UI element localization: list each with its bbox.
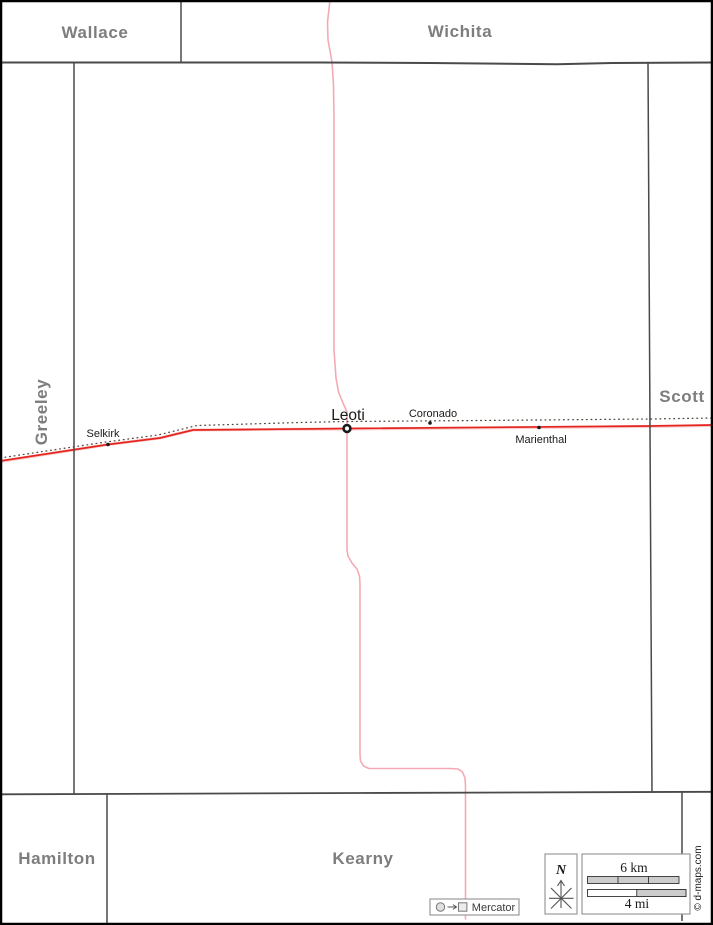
leoti-town-label: Leoti — [331, 407, 365, 424]
copyright-label: © d-maps.com — [693, 845, 704, 910]
marienthal-town-dot — [537, 426, 541, 430]
scale-widget: 6 km 4 mi — [582, 854, 690, 914]
county-label-scott: Scott — [659, 387, 705, 406]
county-label-greeley: Greeley — [32, 379, 51, 446]
projection-widget: Mercator — [430, 899, 519, 915]
flat-map-square-icon — [459, 903, 467, 911]
scale-km-label: 6 km — [620, 860, 648, 875]
county-label-hamilton: Hamilton — [18, 849, 96, 868]
scale-bar-km — [588, 877, 680, 884]
projection-label: Mercator — [472, 902, 516, 914]
coronado-town-dot — [428, 421, 432, 425]
map-background — [0, 0, 713, 925]
county-label-kearny: Kearny — [332, 849, 393, 868]
county-label-wichita: Wichita — [428, 22, 493, 41]
north-label: N — [555, 863, 567, 878]
coronado-town-label: Coronado — [409, 408, 457, 420]
selkirk-town-label: Selkirk — [86, 428, 120, 440]
leoti-county-seat-marker — [344, 425, 351, 432]
north-indicator: N — [545, 854, 577, 914]
marienthal-town-label: Marienthal — [515, 434, 566, 446]
county-label-wallace: Wallace — [62, 23, 129, 42]
scale-mi-label: 4 mi — [625, 896, 650, 911]
county-map: Selkirk Coronado Marienthal Leoti Wallac… — [0, 0, 713, 925]
globe-circle-icon — [436, 903, 444, 911]
selkirk-town-dot — [106, 443, 110, 447]
